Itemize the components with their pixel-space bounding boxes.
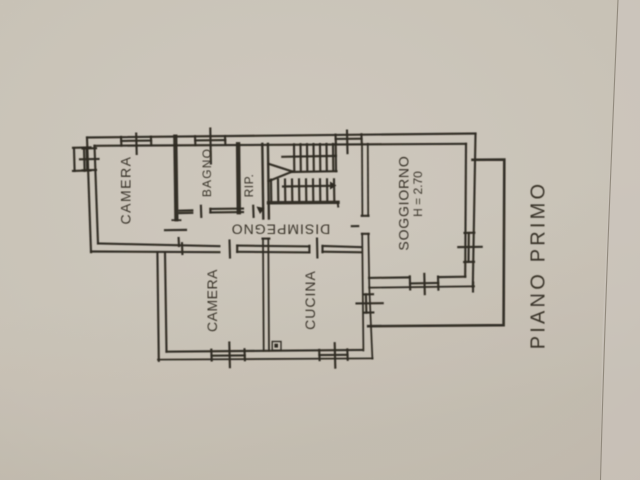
svg-text:RIP.: RIP. (242, 174, 256, 198)
svg-text:DISIMPEGNO: DISIMPEGNO (231, 221, 330, 237)
svg-text:H = 2.70: H = 2.70 (411, 171, 425, 217)
svg-text:CAMERA: CAMERA (118, 156, 134, 225)
svg-text:PIANO PRIMO: PIANO PRIMO (527, 181, 549, 350)
svg-text:CAMERA: CAMERA (204, 269, 220, 332)
svg-text:SOGGIORNO: SOGGIORNO (396, 155, 412, 250)
svg-text:CUCINA: CUCINA (302, 270, 318, 330)
svg-text:BAGNO: BAGNO (200, 148, 214, 197)
